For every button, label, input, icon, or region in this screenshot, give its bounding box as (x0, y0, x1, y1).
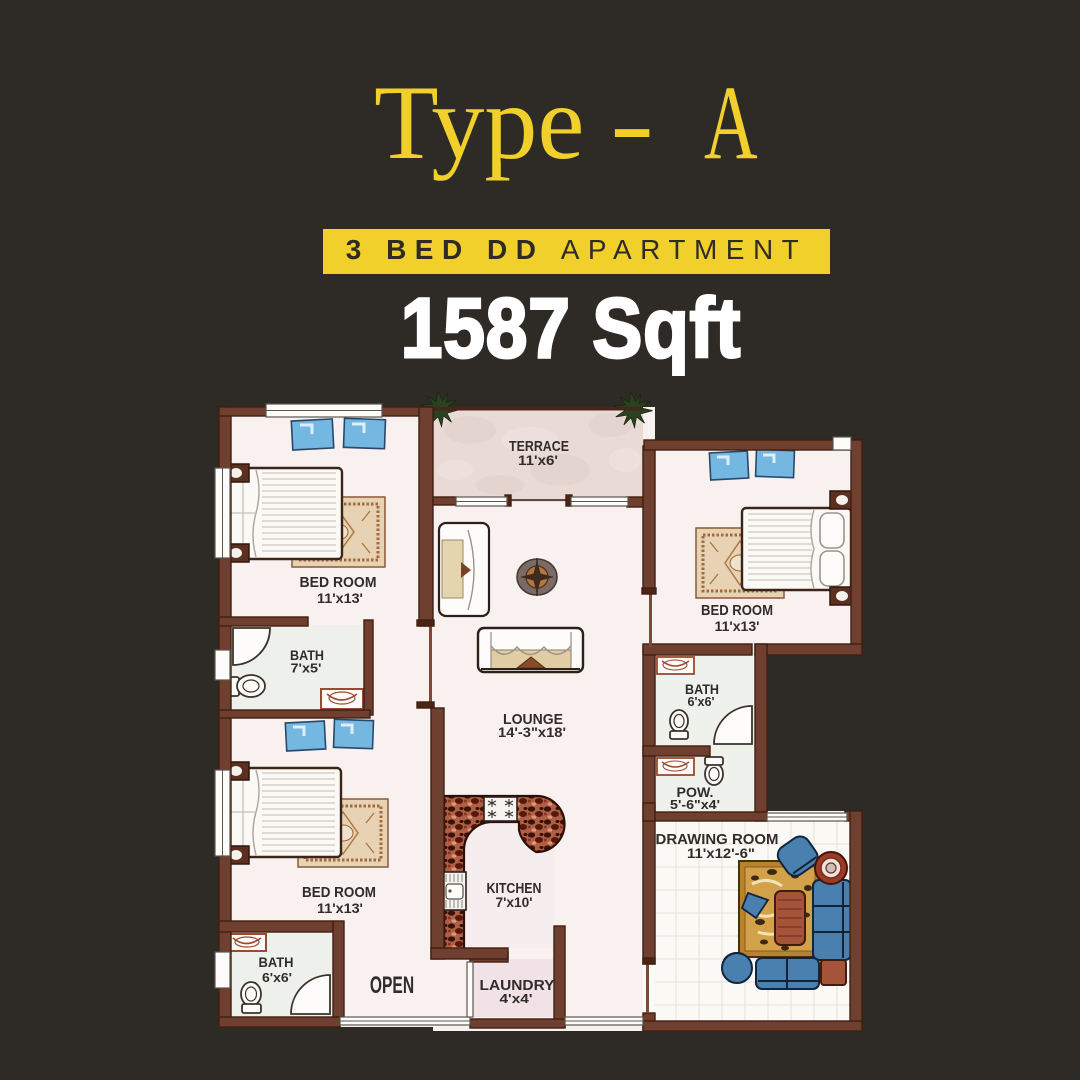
svg-text:7'x5': 7'x5' (291, 661, 322, 675)
svg-text:BED ROOM: BED ROOM (300, 575, 377, 592)
svg-text:11'x6': 11'x6' (518, 454, 558, 469)
svg-text:6'x6': 6'x6' (262, 970, 292, 984)
svg-text:BED ROOM: BED ROOM (701, 601, 773, 618)
svg-text:OPEN: OPEN (370, 973, 414, 999)
svg-text:5'-6"x4': 5'-6"x4' (670, 798, 720, 812)
svg-text:11'x13': 11'x13' (317, 590, 363, 605)
svg-text:KITCHEN: KITCHEN (486, 880, 541, 896)
svg-text:11'x12'-6": 11'x12'-6" (687, 847, 755, 862)
svg-text:DRAWING ROOM: DRAWING ROOM (656, 831, 779, 848)
svg-text:TERRACE: TERRACE (509, 438, 569, 454)
svg-text:BED ROOM: BED ROOM (302, 884, 376, 901)
svg-text:6'x6': 6'x6' (687, 694, 714, 709)
svg-text:7'x10': 7'x10' (496, 895, 533, 910)
svg-text:14'-3"x18': 14'-3"x18' (498, 725, 566, 740)
svg-text:4'x4': 4'x4' (500, 992, 533, 1007)
svg-text:11'x13': 11'x13' (317, 900, 363, 915)
svg-text:11'x13': 11'x13' (715, 619, 760, 634)
svg-text:BATH: BATH (259, 955, 294, 971)
